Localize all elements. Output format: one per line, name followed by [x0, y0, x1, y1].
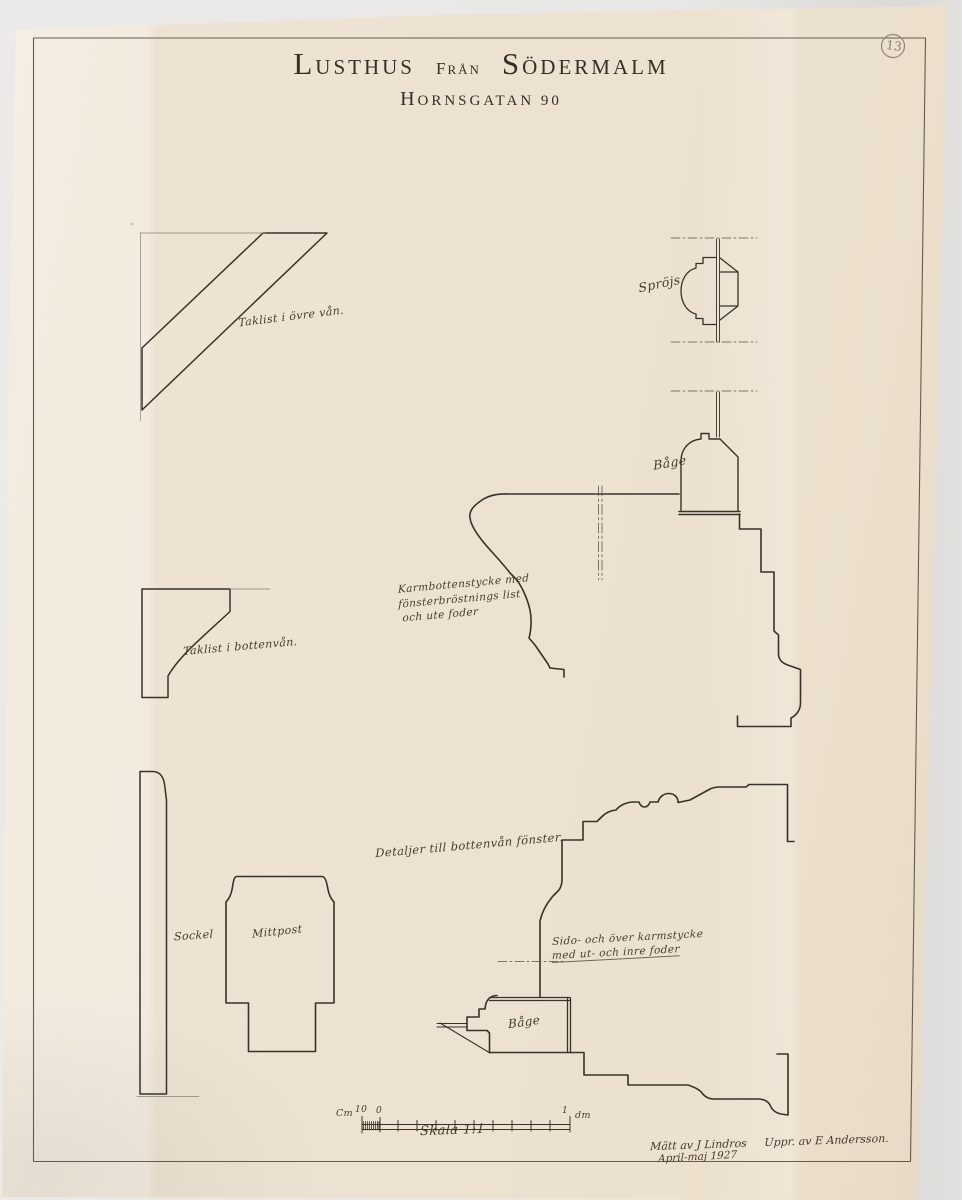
title-word: Lusthus [293, 46, 415, 82]
scale-unit-right: dm [575, 1110, 591, 1121]
label-sockel: Sockel [174, 928, 213, 944]
sheet-subtitle: Hornsgatan 90 [0, 88, 962, 111]
scanned-drawing-sheet: Lusthus från Södermalm Hornsgatan 90 13 … [0, 0, 962, 1200]
sash-bottom-double-line [679, 512, 740, 515]
title-word: från [436, 59, 481, 79]
sheet-title: Lusthus från Södermalm [0, 46, 962, 82]
pane-lines [717, 239, 720, 342]
scale-tick-1: 1 [562, 1106, 568, 1116]
sprojs-profile [671, 238, 757, 342]
scale-tick-0: 0 [376, 1106, 382, 1116]
subtitle-text: Hornsgatan 90 [400, 88, 562, 111]
dash-dot-centerline [671, 238, 757, 342]
pane-lines [717, 392, 720, 437]
break-line [599, 486, 603, 580]
scale-hatch [364, 1122, 380, 1131]
mittpost-profile [226, 877, 334, 1052]
paper-stain [131, 223, 134, 226]
scale-caption: Skala 1:1 [420, 1122, 486, 1139]
taklist-ovre-vaan-profile [140, 233, 327, 421]
scale-tick-10: 10 [355, 1105, 367, 1115]
sheet-number: 13 [883, 37, 905, 55]
scale-unit-left: Cm [336, 1108, 353, 1119]
title-word: Södermalm [502, 46, 669, 82]
